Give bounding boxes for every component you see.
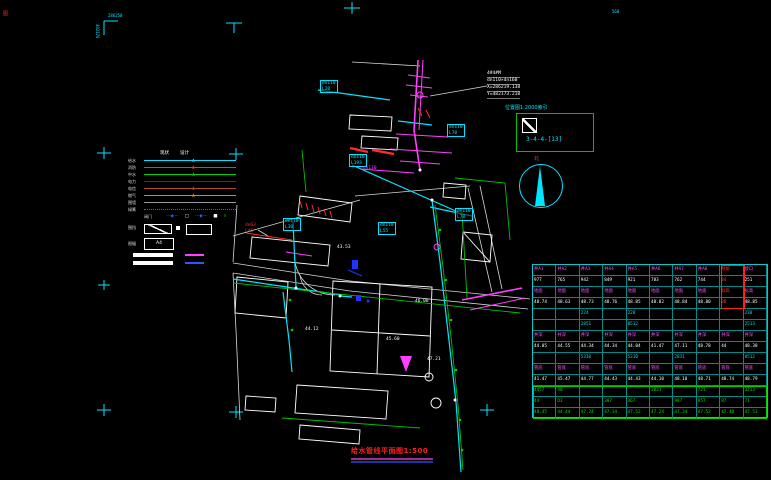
pipe-label: 45.60 [386, 337, 400, 343]
table-cell [603, 320, 626, 331]
table-cell: 977 [533, 276, 556, 287]
table-cell [556, 320, 579, 331]
legend-row: 电信▲ [128, 185, 236, 192]
table-cell: 地面 [556, 287, 579, 298]
north-label: 北 [534, 155, 539, 162]
table-cell: 井A2 [556, 265, 579, 276]
table-cell: 2851 [580, 320, 603, 331]
pipe-label: 46.08 [415, 299, 429, 305]
index-box[interactable]: 3-4-4-[13] [516, 113, 594, 152]
table-cell: 地面 [603, 287, 626, 298]
legend-row: 围墙 [128, 199, 236, 206]
table-cell: 48.73 [580, 298, 603, 309]
table-cell [720, 353, 743, 364]
legend-line [144, 202, 236, 203]
table-cell: 井A5 [627, 265, 650, 276]
table-cell: 783 [650, 276, 673, 287]
table-cell: 井A8 [697, 265, 720, 276]
legend-line [144, 181, 236, 182]
pipe-label: dn110 L55 [378, 222, 396, 235]
table-cell: 井A4 [603, 265, 626, 276]
legend-header-existing: 现状 [160, 150, 169, 156]
legend-line: ▲ [144, 195, 236, 196]
table-cell: 48.74 [720, 375, 743, 386]
table-cell [673, 309, 696, 320]
table-cell [697, 309, 720, 320]
annotation-line: X=286219.138 [487, 85, 520, 92]
annotation-line: Y=482173.218 [487, 92, 520, 99]
table-cell: 48.71 [697, 375, 720, 386]
legend-symbol-icon: —◆— [166, 214, 178, 219]
legend-line: ▲ [144, 174, 236, 175]
table-cell [556, 309, 579, 320]
table-cell: 224 [580, 309, 603, 320]
legend-a4-row: 图幅 A4 [128, 238, 236, 250]
table-cell: 井深 [627, 331, 650, 342]
table-cell: 井A7 [673, 265, 696, 276]
table-cell: 44.43 [627, 375, 650, 386]
legend-header-design: 设计 [180, 150, 189, 156]
magenta-symbol [400, 356, 412, 372]
table-cell: 地面 [673, 287, 696, 298]
legend-symbol-icon: —◆— [195, 214, 207, 219]
legend-magenta-line [185, 254, 204, 256]
pipe-label: 47.21 [427, 357, 441, 363]
legend-symbol-icon: ¤ [223, 214, 226, 219]
table-cell: 井深 [720, 331, 743, 342]
table-cell: 44.43 [603, 375, 626, 386]
table-cell: 942 [580, 276, 603, 287]
pipe-label: 44.12 [305, 327, 319, 333]
table-cell [697, 353, 720, 364]
connection-annotation: 4#4#M dn110×dn160 X=286219.138 Y=482173.… [487, 71, 520, 99]
table-cell [533, 320, 556, 331]
table-cell [533, 353, 556, 364]
legend-row: 绿篱 [128, 206, 236, 213]
table-cell: 井深 [673, 331, 696, 342]
legend-label: 消防 [128, 165, 144, 171]
table-cell: 接口 [744, 265, 767, 276]
legend-row: 中水▲ [128, 171, 236, 178]
legend-box-row: 围挡 [128, 223, 236, 235]
table-cell: 48.10 [673, 375, 696, 386]
legend-row: 电力 [128, 178, 236, 185]
legend-label: 中水 [128, 172, 144, 178]
legend-square-icon [176, 226, 180, 230]
table-cell: 地面 [580, 287, 603, 298]
table-cell: 45.47 [556, 375, 579, 386]
table-cell: 762 [673, 276, 696, 287]
table-cell: 地面 [627, 287, 650, 298]
roads [233, 62, 530, 420]
table-cell: 井A6 [650, 265, 673, 276]
table-cell [720, 320, 743, 331]
pipe-label: dn110 L78 [455, 208, 473, 221]
table-cell: 管底 [697, 364, 720, 375]
table-cell: 管底 [650, 364, 673, 375]
index-box-reference: 3-4-4-[13] [526, 136, 562, 143]
legend-line: ▲ [144, 188, 236, 189]
frame-coordinate-x: 286250 [108, 13, 122, 18]
legend-label: 燃气 [128, 193, 144, 199]
table-cell: 44.34 [580, 342, 603, 353]
table-cell: 井深 [580, 331, 603, 342]
legend-symbol-icon: ■ [213, 214, 217, 219]
table-cell: 管底 [580, 364, 603, 375]
table-cell: 921 [627, 276, 650, 287]
drawing-title: 给水管线平面图1:500 [351, 446, 428, 456]
manhole-schedule-table[interactable]: 井A1井A2井A3井A4井A5井A6井A7井A8预留接口977765942849… [532, 264, 768, 418]
table-cell: 48.79 [744, 375, 767, 386]
table-cell: 地面 [697, 287, 720, 298]
legend-label: 围墙 [128, 200, 144, 206]
legend-blue-line [185, 262, 204, 264]
table-cell: 41.47 [650, 342, 673, 353]
pipe-label: dn110 L70 [447, 124, 465, 137]
legend-marker-icon: ▲ [192, 164, 195, 169]
legend-rect-icon [186, 224, 212, 235]
table-cell: 48.84 [673, 298, 696, 309]
hatch-square-icon [522, 118, 537, 133]
legend-line: ▲ [144, 160, 236, 161]
legend-label: 图幅 [128, 241, 144, 247]
table-cell: 48.38 [744, 342, 767, 353]
legend-row: 给水▲ [128, 157, 236, 164]
table-cell [603, 309, 626, 320]
legend-marker-icon: ▲ [192, 157, 195, 162]
legend-symbol-row: 阀门—◆—□—◆—■¤ [144, 213, 226, 220]
legend-symbol-icon: □ [184, 214, 188, 219]
table-cell: 管底 [556, 364, 579, 375]
legend-label: 绿篱 [128, 207, 144, 213]
table-cell: 井深 [533, 331, 556, 342]
frame-coordinate-y: 482170 [95, 24, 100, 38]
table-cell [673, 320, 696, 331]
legend-row: 燃气▲ [128, 192, 236, 199]
table-cell: 251 [744, 276, 767, 287]
table-cell: 2513 [744, 320, 767, 331]
table-cell: 5310 [580, 353, 603, 364]
table-cell: 井深 [556, 331, 579, 342]
table-cell: 44.77 [580, 375, 603, 386]
legend-line: ▲ [144, 167, 236, 168]
legend-parallelogram-icon [144, 224, 172, 234]
table-cell: 8512 [744, 353, 767, 364]
table-cell: 44.04 [627, 342, 650, 353]
table-cell: 48.74 [533, 298, 556, 309]
frame-grid-label: 568 [612, 9, 619, 14]
table-cell [650, 320, 673, 331]
pipe-label: 43.53 [337, 245, 351, 251]
pipe-label: dn110 [363, 166, 377, 172]
pipe-label: dn110 L30 [283, 218, 301, 231]
table-cell: 井深 [603, 331, 626, 342]
legend-label: 电信 [128, 186, 144, 192]
table-cell: 44.34 [603, 342, 626, 353]
legend-a4-box: A4 [144, 238, 174, 250]
table-cell: 765 [556, 276, 579, 287]
table-cell: 管底 [533, 364, 556, 375]
table-cell: 井深 [650, 331, 673, 342]
title-underlines [351, 459, 433, 462]
table-cell: 标高 [744, 287, 767, 298]
table-cell: 8512 [627, 320, 650, 331]
table-cell: 管底 [720, 364, 743, 375]
table-green-highlight-box [533, 386, 767, 419]
table-cell: 48.80 [697, 298, 720, 309]
annotation-line: 4#4#M [487, 71, 520, 78]
legend-label: 电力 [128, 179, 144, 185]
table-red-highlight-box [721, 265, 745, 309]
index-box-caption: 位置图1:2000索引 [505, 104, 548, 111]
table-cell: 47.11 [673, 342, 696, 353]
table-cell: 48.63 [556, 298, 579, 309]
annotation-line: dn110×dn160 [487, 78, 520, 85]
green-lines [233, 150, 520, 470]
table-cell: 管底 [627, 364, 650, 375]
table-cell [697, 320, 720, 331]
table-cell: 5310 [627, 353, 650, 364]
table-cell: 地面 [533, 287, 556, 298]
table-cell: 238 [744, 309, 767, 320]
table-cell: 48.85 [744, 298, 767, 309]
legend-rows: 给水▲消防▲中水▲电力电信▲燃气▲围墙绿篱 [128, 157, 236, 213]
table-cell: 井深 [697, 331, 720, 342]
legend-label: 给水 [128, 158, 144, 164]
north-arrow-circle [519, 164, 563, 208]
table-cell: 44.05 [533, 342, 556, 353]
table-cell: 44 [720, 342, 743, 353]
cad-canvas[interactable]: 286250 482170 图 568 4#4#M dn110×dn160 X=… [0, 0, 771, 480]
table-cell: 44.55 [556, 342, 579, 353]
table-cell: 228 [627, 309, 650, 320]
table-cell: 48.78 [697, 342, 720, 353]
table-cell: 井A3 [580, 265, 603, 276]
table-cell: 2831 [673, 353, 696, 364]
table-cell: 41.47 [533, 375, 556, 386]
legend-row: 消防▲ [128, 164, 236, 171]
legend-bar [133, 253, 173, 257]
legend-label: 围挡 [128, 225, 144, 231]
table-cell: 849 [603, 276, 626, 287]
table-cell: 48.82 [650, 298, 673, 309]
table-cell: 管底 [603, 364, 626, 375]
table-cell: 44.10 [650, 375, 673, 386]
legend-marker-icon: ▲ [192, 185, 195, 190]
table-cell: 管底 [744, 364, 767, 375]
frame-corner-glyph: 图 [3, 10, 8, 17]
table-cell [556, 353, 579, 364]
table-cell: 地面 [650, 287, 673, 298]
table-cell: 48.76 [603, 298, 626, 309]
table-cell [720, 309, 743, 320]
table-cell [650, 353, 673, 364]
table-cell: 管底 [673, 364, 696, 375]
pipe-label: dn110 L20 [320, 80, 338, 93]
table-cell: 井A1 [533, 265, 556, 276]
legend-marker-icon: ▲ [192, 171, 195, 176]
table-cell [603, 353, 626, 364]
table-cell: 744 [697, 276, 720, 287]
table-cell [650, 309, 673, 320]
pipe-label: dn63 L45 [245, 223, 256, 234]
legend-bar [133, 261, 173, 265]
legend-line [144, 209, 236, 210]
table-cell: 48.85 [627, 298, 650, 309]
legend-label: 阀门 [144, 214, 160, 220]
legend-marker-icon: ▲ [192, 192, 195, 197]
table-cell: 井深 [744, 331, 767, 342]
table-cell [533, 309, 556, 320]
